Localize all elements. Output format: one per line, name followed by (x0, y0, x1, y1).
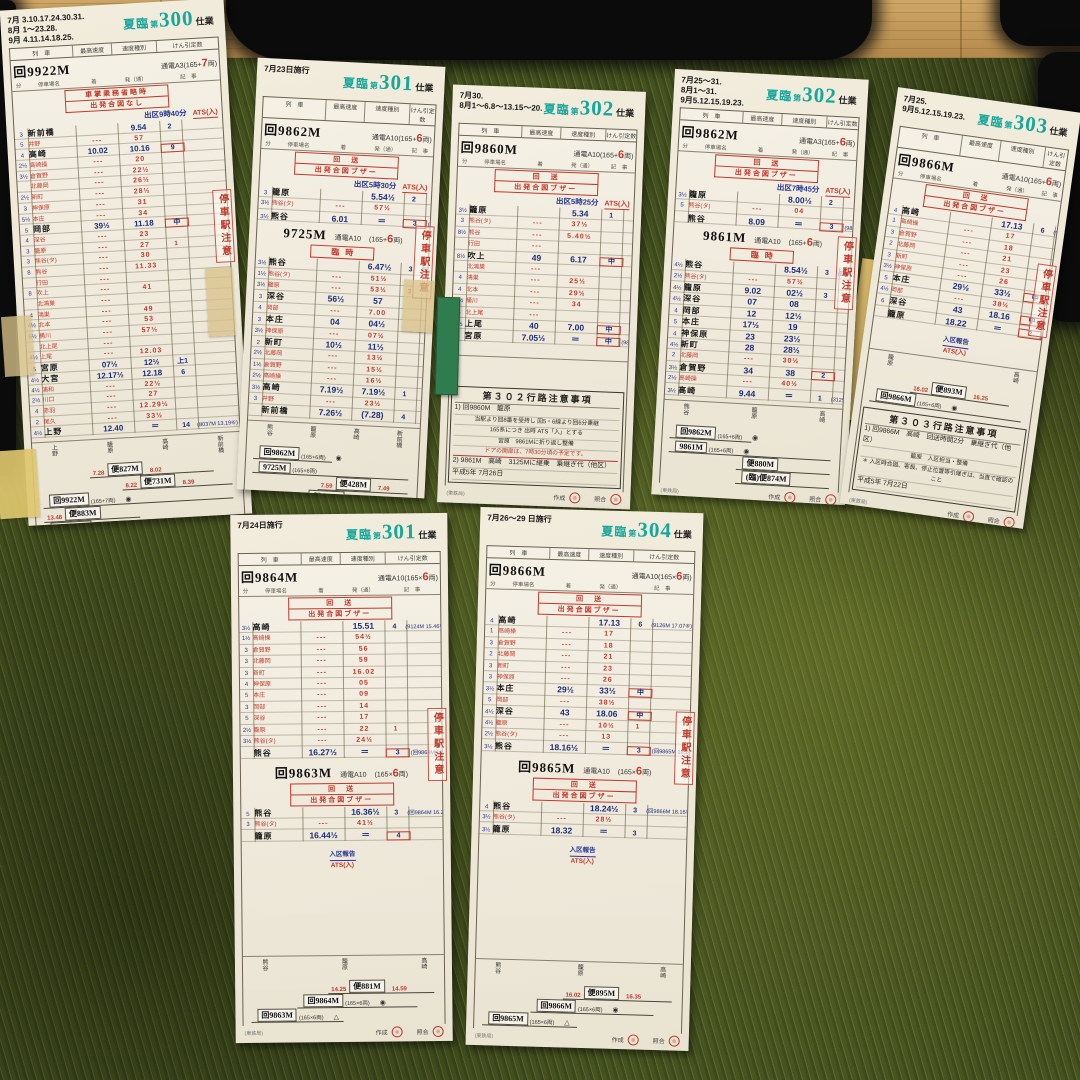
departure-signal-note: 回 送出発合図ブザー (288, 596, 392, 620)
arrival-time: --- (514, 288, 556, 297)
station-name: 井野 (262, 393, 310, 404)
departure-time: 33½ (133, 411, 175, 420)
diagram-station-label: 新前橋 (395, 429, 402, 451)
diagram-train-bar: 回9865M(165×6両)△ (482, 1011, 578, 1028)
run-diagram: 熊谷籠原高崎 回9862M(165+6両)◉ 9861M(165+6両)◉ 便8… (660, 399, 842, 493)
duty-title: 夏臨第302仕業 (543, 94, 638, 123)
run-minutes: 4 (454, 275, 467, 281)
arrival-time: --- (514, 299, 556, 308)
departure-time: 12.29½ (133, 400, 175, 409)
track-number (1029, 253, 1049, 256)
track-number (167, 255, 187, 256)
station-name: 行田 (36, 275, 84, 287)
bar-train-label: 便428M (335, 477, 371, 492)
bar-train-label: 9725M (259, 461, 291, 474)
bar-consist: (165×6両) (578, 1005, 603, 1014)
departure-time: 7.19½ (352, 386, 394, 398)
departure-time: 12.03 (130, 347, 172, 356)
arrival-time: --- (81, 232, 123, 241)
duty-title-suffix: 仕業 (838, 95, 857, 106)
run-minutes: 4½ (28, 378, 41, 385)
run-minutes: 3½ (254, 282, 267, 289)
run-minutes: 8 (22, 270, 35, 277)
run-minutes: 3½ (252, 327, 265, 334)
track-number: 1 (166, 239, 186, 247)
run-minutes: 8½ (454, 253, 467, 259)
duty-number: 304 (637, 517, 672, 542)
run-minutes: 6 (876, 297, 890, 305)
arrival-time: 49 (515, 252, 557, 264)
departure-time: 04 (778, 207, 820, 216)
duty-title-dai: 第 (370, 81, 378, 90)
col-load: けん引定数 (410, 104, 436, 125)
bar-train-label: 回9865M (488, 1011, 528, 1025)
station-name: 熊谷(タ) (35, 254, 83, 266)
run-minutes: 2½ (240, 727, 253, 733)
run-minutes: 2 (667, 352, 680, 359)
arrival-time: --- (301, 725, 343, 732)
departure-time (557, 272, 599, 274)
duty-title: 夏臨第300仕業 (122, 5, 218, 35)
col-remarks: 記 事 (631, 583, 693, 594)
track-number: 1 (627, 723, 647, 731)
station-name: 本庄 (253, 690, 301, 700)
departure-time: 56 (343, 645, 385, 652)
arrival-time: --- (301, 669, 343, 676)
office-code: (東鉄局) (849, 496, 868, 505)
duty-title-suffix: 仕業 (1049, 126, 1068, 138)
col-load: けん引定数 (386, 552, 440, 564)
departure-time: 28½ (770, 344, 812, 356)
departure-time: 27 (132, 390, 174, 399)
load-value: (165+6両) (369, 233, 403, 247)
bar-train-label: 9861M (675, 440, 707, 453)
run-minutes: 3 (22, 259, 35, 266)
departure-time: 57 (118, 134, 160, 143)
track-number (395, 372, 415, 373)
track-number (162, 169, 182, 170)
load-pre: (165× (618, 769, 636, 777)
bar-train-label: 回9862M (259, 445, 299, 460)
arrival-time: --- (86, 317, 128, 326)
departure-time: 10½ (585, 722, 627, 730)
service-date-line: 7月24日施行 (237, 520, 346, 531)
train-spec-line: 回9863M 通電A10 (165×6両) (241, 760, 442, 783)
station-name: 北本 (466, 284, 514, 295)
run-minutes: 3½ (666, 365, 679, 372)
diagram-bars: 14.25便881M14.59 回9864M(165×6両)◉ 回9863M(1… (247, 979, 440, 1023)
masking-tape (205, 267, 236, 336)
col-remarks: 記 事 (823, 149, 856, 160)
arrival-time: --- (545, 652, 587, 660)
run-minutes: 4 (669, 308, 682, 315)
departure-time: 13½ (354, 354, 396, 363)
train-sections: 回9866M 通電A10 (165×6両) 分停車場名着発（通）記 事 (479, 558, 694, 840)
speed-type-value: 通電A10 (372, 132, 399, 143)
run-minutes: 3 (456, 218, 469, 224)
track-number (597, 319, 617, 320)
arrival-time: 12 (730, 307, 772, 319)
train-sections: 回9922M 通電A3 (165+7両) 分停車場名着発（通）記 事 (11, 50, 240, 439)
departure-time: 6.47½ (358, 261, 400, 273)
station-name: 熊谷 (495, 741, 543, 753)
departure-time: 24½ (344, 736, 386, 743)
run-minutes: 2 (31, 419, 44, 426)
station-name: 北藤岡 (253, 656, 301, 666)
col-run-minutes: 分 (261, 139, 274, 149)
arrival-time (541, 809, 583, 810)
timetable: 列 車最高速度速度種別けん引定数 回9862M 通電A3 (165+6両) (659, 107, 860, 492)
run-minutes: 8½ (455, 229, 468, 235)
arrival-time (517, 214, 559, 216)
bar-train-label: 便881M (349, 980, 385, 993)
check-seal-stamp (1003, 516, 1015, 528)
track-number (161, 159, 181, 160)
train-section: 回9860M 通電A10 (165+6両) 分停車場名着発（通）記 事 (451, 136, 636, 347)
speed-type-value: 通電A3 (161, 60, 184, 71)
arrival-time (317, 267, 359, 269)
departure-time: 18.06 (586, 708, 628, 719)
made-label: 作成 (612, 1035, 624, 1044)
stop-station-warning-stamp: 停車駅注意 (834, 236, 857, 310)
station-name: 北上尾 (39, 339, 87, 351)
departure-time: 18 (588, 642, 630, 650)
arrival-time: --- (301, 703, 343, 710)
load-pre: (165+ (183, 61, 201, 69)
station-name: 熊谷(タ) (254, 818, 302, 828)
departure-time: ＝ (344, 746, 386, 758)
entry-note-line: 入区報告 (569, 845, 595, 856)
departure-time: 26 (587, 676, 629, 684)
departure-time: 29½ (556, 289, 598, 298)
departure-time: 30 (125, 251, 167, 260)
train-section: 9861M 通電A10 (165+6両) 分停車場名着発（通）記 事 臨時 (665, 225, 852, 404)
run-minutes: 5 (669, 319, 682, 326)
departure-time: 26½ (120, 176, 162, 185)
col-speed-type: 速度種別 (365, 102, 411, 124)
station-name: 熊谷(タ) (254, 735, 302, 745)
departure-time: 22½ (132, 379, 174, 388)
col-arrival: 着 (739, 145, 781, 156)
speed-type-value: 通電A10 (378, 573, 405, 583)
station-name: 熊谷 (254, 807, 302, 819)
entry-note-line: ATS(入) (479, 854, 686, 870)
departure-time: 11½ (354, 341, 396, 353)
departure-time (126, 277, 168, 279)
departure-time: 8.54½ (775, 264, 817, 276)
track-number (630, 637, 650, 638)
departure-time: 22 (343, 725, 385, 732)
station-name: 北上尾 (465, 307, 513, 318)
departure-time: 17 (588, 630, 630, 638)
station-name: 熊谷(タ) (469, 216, 517, 227)
col-arrival: 着 (547, 581, 589, 591)
track-number: 3 (817, 269, 837, 277)
arrival-time: --- (83, 253, 125, 262)
arrival-time (737, 200, 779, 202)
route-notices: 第３０２行路注意事項 1) 回9860M 籠原当駅より回8番を受持し 回5・6線… (446, 383, 627, 492)
departure-signal-note: 回 送出発合図ブザー (537, 592, 642, 618)
connection-note: (回9866M 18.16½③) (646, 806, 687, 815)
run-minutes: 3 (484, 663, 497, 669)
col-arrival: 着 (519, 159, 561, 170)
train-spec-line: 回9864M 通電A10 (165×6両) (239, 564, 440, 587)
track-number (397, 338, 417, 339)
bar-consist: (165+7両) (91, 496, 116, 505)
departure-time: 22½ (120, 166, 162, 175)
depot-out-time: 出区7時45分 (777, 182, 820, 195)
arrival-time: --- (88, 349, 130, 358)
arrival-time: --- (728, 355, 770, 364)
departure-time: 23½ (352, 400, 394, 409)
check-seal-stamp (825, 494, 837, 505)
station-name: 北鴻巣 (467, 261, 515, 272)
bar-start-time: 16.02 (565, 993, 580, 999)
train-section: 回9864M 通電A10 (165×6両) 分停車場名着発（通）記 事 (239, 564, 442, 759)
run-diagram: 熊谷籠原高崎 14.25便881M14.59 回9864M(165×6両)◉ 回… (243, 954, 445, 1026)
diagram-station-label: 高崎 (1010, 371, 1019, 394)
run-minutes: 2½ (29, 398, 42, 405)
service-dates: 7月23日施行 (264, 64, 344, 78)
arrival-time: --- (732, 275, 774, 284)
arrival-time: 17½ (730, 319, 772, 331)
track-number: 1 (385, 725, 405, 732)
card-footer: (東鉄局) 作成 照合 (243, 1024, 446, 1039)
service-dates: 7月30.8月1～6.8～13.15～20. (459, 91, 544, 114)
run-minutes: 3 (484, 674, 497, 680)
diagram-stations: 熊谷籠原高崎 (247, 957, 440, 981)
track-number: 上1 (172, 356, 193, 367)
run-diagram: 熊谷籠原高崎新前橋 回9862M(165+6両)◉ 9725M(165×6両) … (244, 419, 420, 498)
arrival-time: --- (87, 328, 129, 337)
departure-time: 8.00½ (779, 194, 821, 206)
bar-start-time: 8.51 (294, 496, 306, 499)
station-name: 鴻巣 (38, 307, 86, 319)
load-pre: (165+ (369, 236, 387, 244)
diagram-station-label: 籠原 (884, 353, 893, 376)
departure-time: 23 (587, 665, 629, 673)
run-minutes: 4 (485, 618, 498, 624)
ats-note: ATS(入) (604, 198, 630, 210)
ats-note: ATS(入) (402, 182, 428, 194)
stop-station-warning-stamp: 停車駅注意 (674, 712, 695, 786)
diagram-station-label: 籠原 (105, 441, 112, 463)
load-pre: (165+ (821, 139, 839, 147)
col-departure: 発（通） (342, 586, 384, 595)
station-name: 高崎操 (679, 373, 727, 385)
station-name: 熊谷 (687, 213, 736, 227)
train-sections: 回9862M 通電A3 (165+6両) 分停車場名着発（通）記 事 (665, 120, 858, 404)
run-minutes: 3½ (258, 214, 271, 221)
arrival-time: --- (301, 714, 343, 721)
train-sections: 回9862M 通電A10 (165+6両) 分停車場名着発（通）記 事 (248, 118, 434, 424)
arrival-time: --- (80, 211, 122, 220)
duty-number: 301 (382, 519, 417, 543)
run-minutes: 3 (259, 190, 272, 197)
run-minutes: 3 (253, 317, 266, 324)
run-minutes: 2½ (251, 350, 264, 357)
track-number: 9 (160, 143, 184, 153)
diagram-station-label: 籠原 (340, 958, 346, 980)
bar-train-label: 回9862M (676, 424, 716, 439)
station-name: 深谷 (496, 706, 544, 718)
track-number (599, 273, 619, 274)
station-rows: 4高崎17.136(9126M 17.07⑥) 1高崎操---17 3倉賀野--… (482, 614, 693, 756)
departure-time: 41 (126, 283, 168, 292)
col-run-minutes: 分 (486, 579, 499, 588)
col-departure: 発（通） (781, 147, 823, 158)
duty-number: 301 (379, 70, 415, 96)
bar-start-time: 7.59 (321, 483, 333, 490)
track-number (1031, 242, 1051, 245)
station-name: 高崎操 (29, 158, 77, 170)
departure-time: 21 (587, 653, 629, 661)
arrival-time: --- (91, 403, 133, 412)
bar-train-label: 便895M (583, 986, 619, 1000)
station-name: 神保原 (32, 200, 80, 212)
entry-notes: 入区報告ATS(入) (242, 840, 443, 874)
station-name: 熊谷(タ) (688, 200, 736, 212)
load-value: (165×6両) (404, 571, 438, 583)
station-rows: 3½籠原5.341 3熊谷(タ)---37½ 8½熊谷---5.40½ 行田--… (451, 204, 633, 347)
arrival-time: --- (544, 698, 586, 706)
run-minutes: 4 (21, 238, 34, 245)
station-name: 行田 (468, 238, 516, 249)
run-minutes: 5 (240, 693, 253, 699)
maker-seal-stamp (962, 511, 974, 523)
bar-consist: (165×6両) (530, 1018, 555, 1027)
duty-timetable-card: 7月23日施行 夏臨第301仕業 列 車最高速度速度種別けん引定数 回9862M (237, 58, 446, 499)
made-label: 作成 (768, 492, 780, 502)
arrival-time: 9.02 (732, 284, 774, 296)
arrival-time: --- (316, 272, 358, 281)
speed-type-value: 通電A10 (583, 766, 610, 777)
duty-title-suffix: 仕業 (415, 82, 433, 93)
station-name: 籠原 (34, 243, 82, 255)
track-number (169, 298, 189, 299)
train-number: 回9863M (275, 762, 332, 782)
col-max-speed: 最高速度 (522, 126, 561, 138)
arrival-time: --- (310, 397, 352, 406)
station-name: 北藤岡 (497, 649, 545, 659)
duty-number: 302 (802, 82, 838, 108)
departure-time: 13 (585, 733, 627, 741)
run-minutes: 4 (16, 154, 29, 161)
col-arrival: 着 (73, 76, 115, 87)
run-diagram: 熊谷籠原高崎 16.02便895M16.35 回9866M(165×6両)◉ 回… (474, 958, 683, 1034)
duty-title-suffix: 仕業 (418, 530, 436, 540)
station-name: 熊谷(タ) (493, 812, 541, 822)
bar-consist: (165+6両) (917, 399, 942, 410)
run-minutes: 3½ (249, 385, 262, 392)
duty-title-prefix: 夏臨 (977, 113, 1005, 130)
load-post: 両) (1051, 181, 1061, 189)
track-number: 6 (173, 368, 193, 376)
track-number (396, 361, 416, 362)
track-number: 1 (601, 212, 621, 220)
bar-start-time: 13.48 (47, 515, 62, 522)
track-number (629, 659, 649, 660)
arrival-time: --- (543, 732, 585, 740)
train-section: 回9862M 通電A10 (165+6両) 分停車場名着発（通）記 事 (258, 118, 435, 228)
col-max-speed: 最高速度 (550, 548, 589, 560)
diagram-station-label: 高崎 (817, 410, 824, 432)
check-label: 照合 (594, 494, 606, 503)
train-number: 9725M (283, 225, 327, 243)
station-name: 熊谷(タ) (495, 728, 543, 738)
speed-type-value: 通電A10 (573, 149, 600, 160)
speed-type-value: 通電A10 (631, 571, 658, 582)
bar-end-marker: ◉ (752, 434, 759, 442)
diagram-station-label: 新前橋 (216, 435, 223, 457)
load-post: 両) (846, 141, 856, 149)
speed-type-value: 通電A10 (340, 769, 367, 779)
train-number: 回9866M (489, 559, 547, 580)
load-value: (165×6両) (618, 765, 652, 778)
bar-train-label: 回9863M (257, 1008, 297, 1021)
train-number: 回9862M (264, 119, 322, 141)
arrival-time: 43 (544, 707, 586, 718)
col-remarks: 記 事 (1037, 189, 1062, 201)
station-name: 岡部 (496, 694, 544, 704)
departure-time: 14 (343, 702, 385, 709)
made-label: 作成 (553, 493, 565, 502)
track-number: 中 (597, 325, 621, 335)
col-run-minutes: 分 (239, 587, 252, 596)
run-minutes: 5½ (19, 217, 32, 224)
arrival-time: --- (302, 820, 344, 827)
run-minutes: 4 (30, 409, 43, 416)
run-minutes: 4½ (483, 709, 496, 715)
bar-end-time: 8.39 (183, 479, 195, 486)
station-name: 新町 (253, 667, 301, 677)
note-line: 回 送 (288, 596, 392, 609)
track-number (600, 250, 620, 251)
departure-time: 31 (122, 198, 164, 207)
col-train: 列 車 (239, 553, 302, 565)
bar-end-time: 14.59 (392, 986, 407, 992)
stop-station-warning-stamp: 停車駅注意 (427, 708, 447, 781)
arrival-time: --- (80, 200, 122, 209)
col-max-speed: 最高速度 (302, 553, 341, 564)
bar-train-label: 便880M (742, 456, 778, 471)
station-name: 鴻巣 (467, 272, 515, 283)
run-minutes: 3 (240, 659, 253, 665)
departure-time (127, 299, 169, 301)
service-dates: 7月25.9月5.12.15.19.23. (901, 94, 980, 124)
run-minutes: 3½ (456, 208, 469, 214)
run-minutes: 1½ (240, 636, 253, 642)
entry-note-line: 入区報告 (329, 850, 355, 861)
station-name: 倉賀野 (253, 644, 301, 654)
track-number (598, 296, 618, 297)
departure-time: ＝ (777, 217, 820, 231)
departure-time: 57½ (361, 204, 403, 213)
load-value: (165×6両) (658, 570, 692, 583)
depot-out-time: 出区5時25分 (556, 195, 599, 208)
load-value: (165+6両) (788, 236, 822, 250)
arrival-time: --- (312, 352, 354, 361)
track-number: 1 (394, 391, 414, 399)
duty-timetable-card: 7月24日施行 夏臨第301仕業 列 車最高速度速度種別けん引定数 回9864M (230, 513, 453, 1043)
connection-note: (986M 8.00⑥) (621, 340, 628, 346)
arrival-time: --- (546, 641, 588, 649)
run-minutes: 3½ (241, 739, 254, 745)
arrival-time: 18.32 (540, 825, 582, 836)
bar-start-time: 7.28 (93, 470, 105, 477)
bar-train-label: 便883M (65, 506, 101, 521)
bar-end-marker: △ (564, 1019, 570, 1027)
